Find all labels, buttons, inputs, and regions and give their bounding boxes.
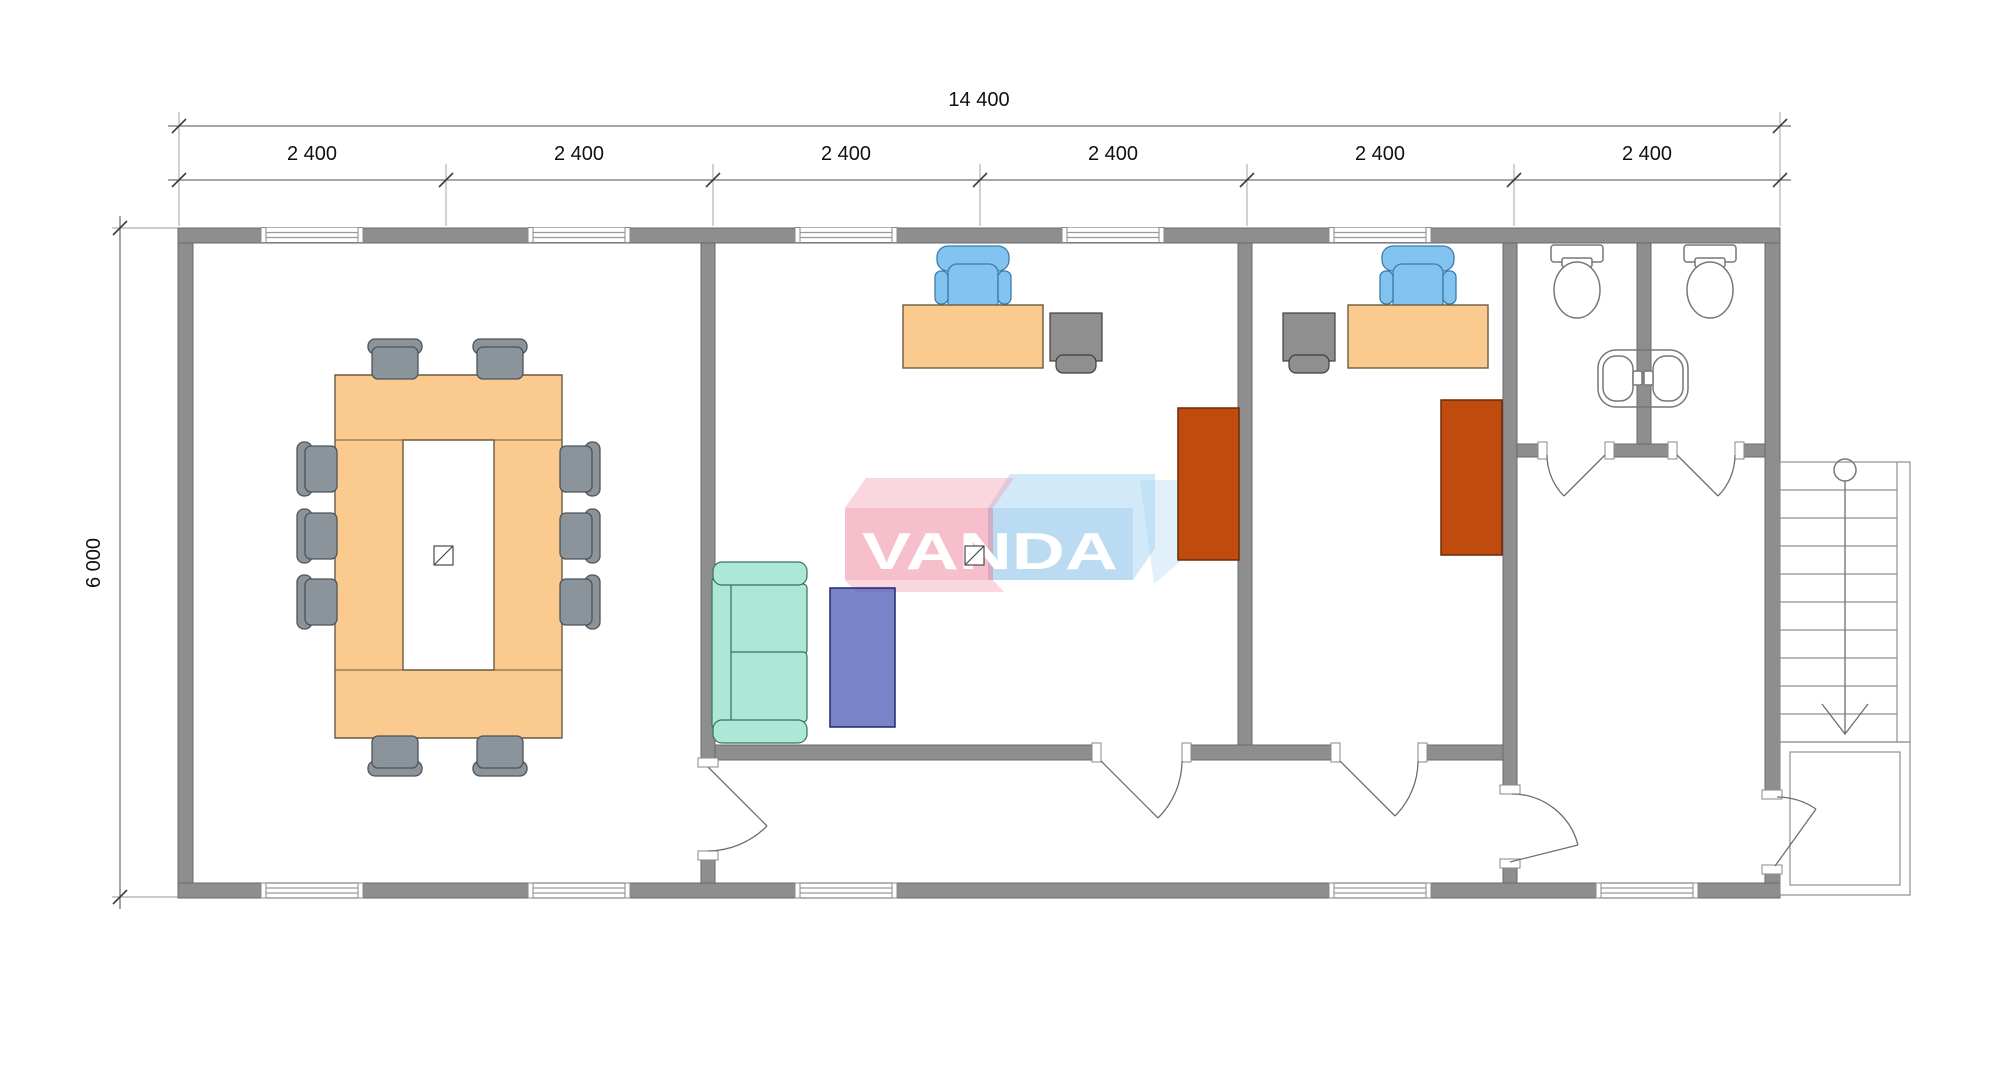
window-top-3	[795, 228, 897, 243]
window-top-1	[261, 228, 363, 243]
door-wc-left	[1538, 442, 1614, 496]
window-bottom-1	[261, 883, 363, 898]
landing-outer	[1780, 742, 1910, 895]
conference-chair	[473, 736, 527, 776]
toilet	[1684, 245, 1736, 318]
bay-label-2: 2 400	[554, 143, 604, 165]
coffee-table	[830, 588, 895, 727]
office-chair	[935, 246, 1011, 312]
tall-cabinet	[1441, 400, 1502, 555]
dimension-bays: 2 400 2 400 2 400 2 400 2 400 2 400	[168, 143, 1791, 187]
floor-drain-symbol	[434, 546, 453, 565]
conference-chair	[368, 736, 422, 776]
conference-chair	[297, 575, 337, 629]
office-desk	[903, 305, 1043, 368]
dimension-total-width: 14 400	[168, 89, 1791, 133]
bay-label-6: 2 400	[1622, 143, 1672, 165]
office-desk	[1348, 305, 1488, 368]
window-top-5	[1329, 228, 1431, 243]
wall-office-partition	[1238, 243, 1252, 760]
floor-plan-drawing: 14 400 2 400 2 400 2 400 2 400 2 400 2 4…	[0, 0, 2000, 1076]
door-private-office	[1331, 743, 1427, 816]
wall-exterior-right	[1765, 243, 1780, 883]
door-wc-right	[1668, 442, 1744, 496]
conference-chair	[560, 442, 600, 496]
window-bottom-3	[795, 883, 897, 898]
dimension-height: 6 000	[83, 216, 127, 909]
desk-pedestal	[1050, 313, 1102, 373]
conference-chair	[297, 442, 337, 496]
bay-label-4: 2 400	[1088, 143, 1138, 165]
conference-chair	[297, 509, 337, 563]
bay-label-1: 2 400	[287, 143, 337, 165]
window-bottom-5	[1329, 883, 1431, 898]
tall-cabinet	[1178, 408, 1239, 560]
height-label: 6 000	[83, 538, 105, 588]
wall-exterior-left	[178, 243, 193, 883]
desk-pedestal	[1283, 313, 1335, 373]
conference-chair	[473, 339, 527, 379]
conference-chair	[560, 575, 600, 629]
office-chair	[1380, 246, 1456, 312]
vanda-watermark-logo: VANDA	[845, 474, 1180, 592]
window-bottom-2	[528, 883, 630, 898]
window-bottom-6	[1596, 883, 1698, 898]
conference-chair	[560, 509, 600, 563]
bay-label-3: 2 400	[821, 143, 871, 165]
wall-exterior-bottom	[178, 883, 1780, 898]
logo-text: VANDA	[862, 523, 1118, 581]
total-width-label: 14 400	[948, 89, 1009, 111]
floor-plan-canvas: 14 400 2 400 2 400 2 400 2 400 2 400 2 4…	[0, 0, 2000, 1076]
exterior-staircase	[1780, 459, 1910, 895]
window-top-2	[528, 228, 630, 243]
logo-pink-box-top	[845, 478, 1014, 508]
door-entry-hall	[1500, 785, 1578, 868]
bay-label-5: 2 400	[1355, 143, 1405, 165]
floor-drain-symbol	[965, 546, 984, 565]
door-conference-room	[698, 758, 767, 860]
toilet	[1551, 245, 1603, 318]
window-top-4	[1062, 228, 1164, 243]
sofa	[712, 562, 807, 743]
door-open-office	[1092, 743, 1191, 818]
wall-exterior-top	[178, 228, 1780, 243]
conference-chair	[368, 339, 422, 379]
private-office-group	[1283, 246, 1502, 555]
